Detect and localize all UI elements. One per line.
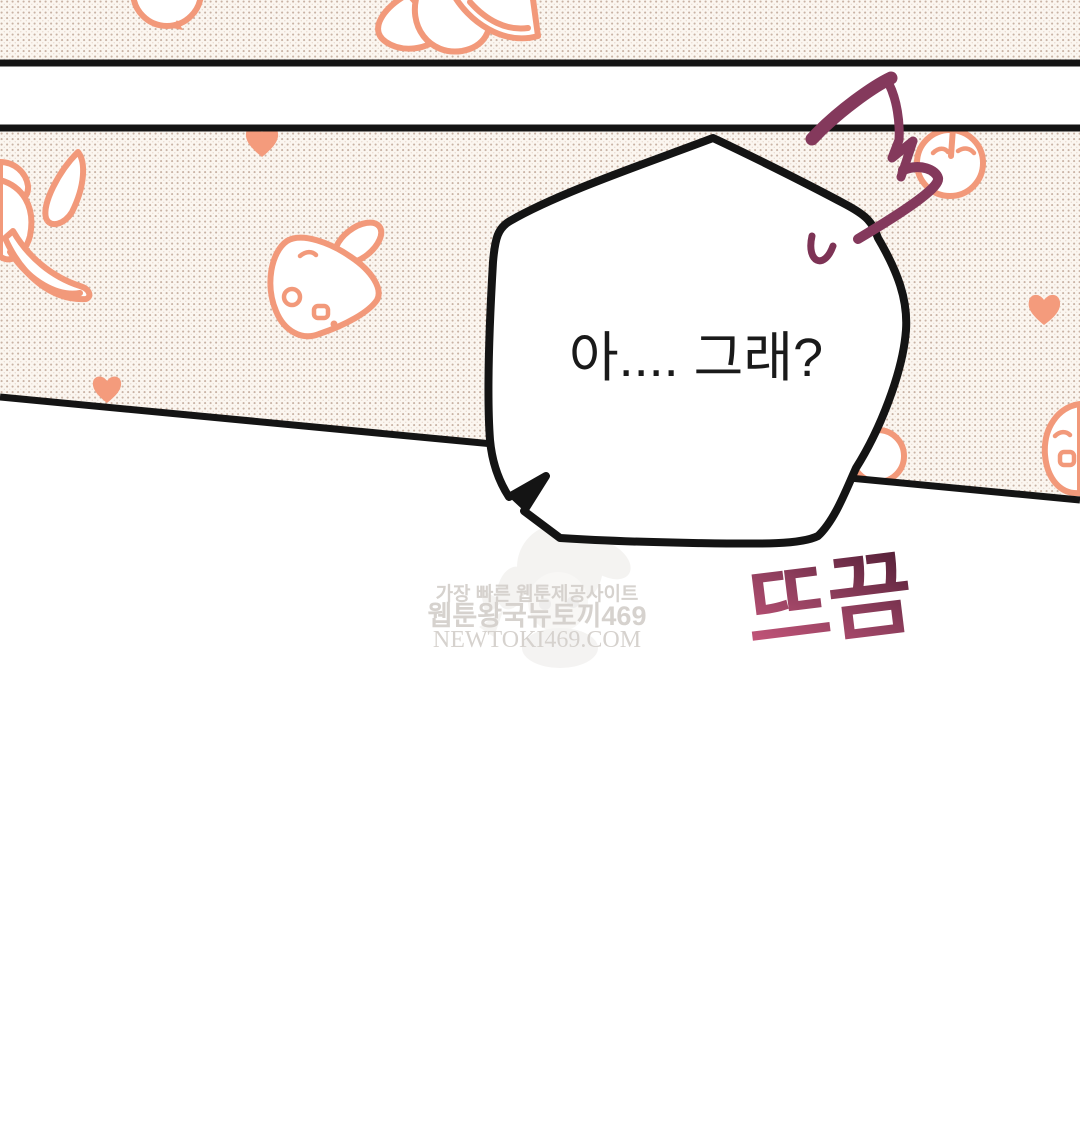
comic-panel-artwork: 아.... 그래? 뜨끔 가장 빠른 웹툰제공사이트 웹툰왕국뉴토끼469 NE… [0,0,1080,1125]
speech-bubble-text: 아.... 그래? [569,328,823,388]
apple-motif [917,128,983,196]
apple-stem [951,128,953,156]
sfx-startle-text: 뜨끔 [740,542,916,663]
webtoon-page: 아.... 그래? 뜨끔 가장 빠른 웹툰제공사이트 웹툰왕국뉴토끼469 NE… [0,0,1080,1125]
speech-bubble: 아.... 그래? [489,138,907,544]
watermark: 가장 빠른 웹툰제공사이트 웹툰왕국뉴토끼469 NEWTOKI469.COM [428,583,647,653]
watermark-line3: NEWTOKI469.COM [433,627,641,653]
mushroom-spot [331,321,338,328]
top-panel [0,0,1080,63]
